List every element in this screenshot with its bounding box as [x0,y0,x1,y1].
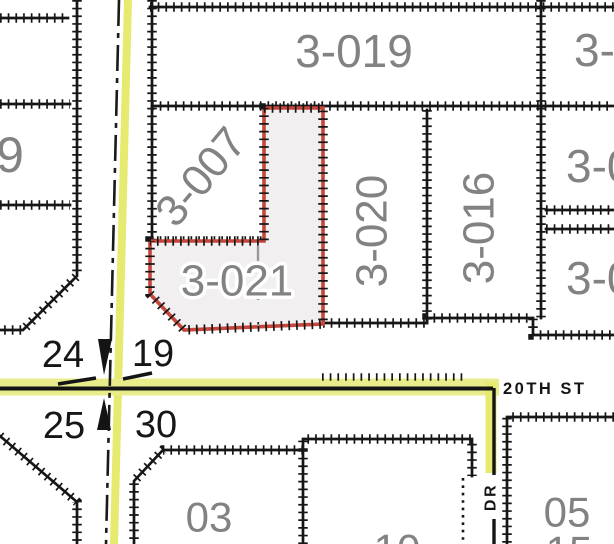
parcel-label-edge-top: 3- [574,24,614,76]
parcel-map-canvas[interactable]: 3-019 3- 3-007 3-020 3-016 3-0 3-0 9 3-0… [0,0,614,544]
street-label-20th-st: 20TH ST [503,380,587,398]
parcel-label-3-020: 3-020 [348,175,397,288]
parcel-label-10: 10 [374,526,421,544]
parcel-map-svg: 3-019 3- 3-007 3-020 3-016 3-0 3-0 9 3-0… [0,0,614,544]
parcel-label-3-019: 3-019 [295,25,413,77]
parcel-label-9: 9 [0,127,24,183]
section-number-sw: 25 [43,405,85,447]
selected-parcel-label: 3-021 [181,257,294,306]
parcel-label-edge-low: 3-0 [566,252,614,304]
section-number-nw: 24 [42,334,84,376]
parcel-label-03: 03 [186,494,233,541]
parcel-label-3-016: 3-016 [455,172,504,285]
parcel-label-edge-mid: 3-0 [566,140,614,192]
section-number-ne: 19 [132,333,174,375]
street-label-dr: DR [483,483,500,511]
section-number-se: 30 [135,404,177,446]
parcel-label-15: 15 [546,528,593,544]
